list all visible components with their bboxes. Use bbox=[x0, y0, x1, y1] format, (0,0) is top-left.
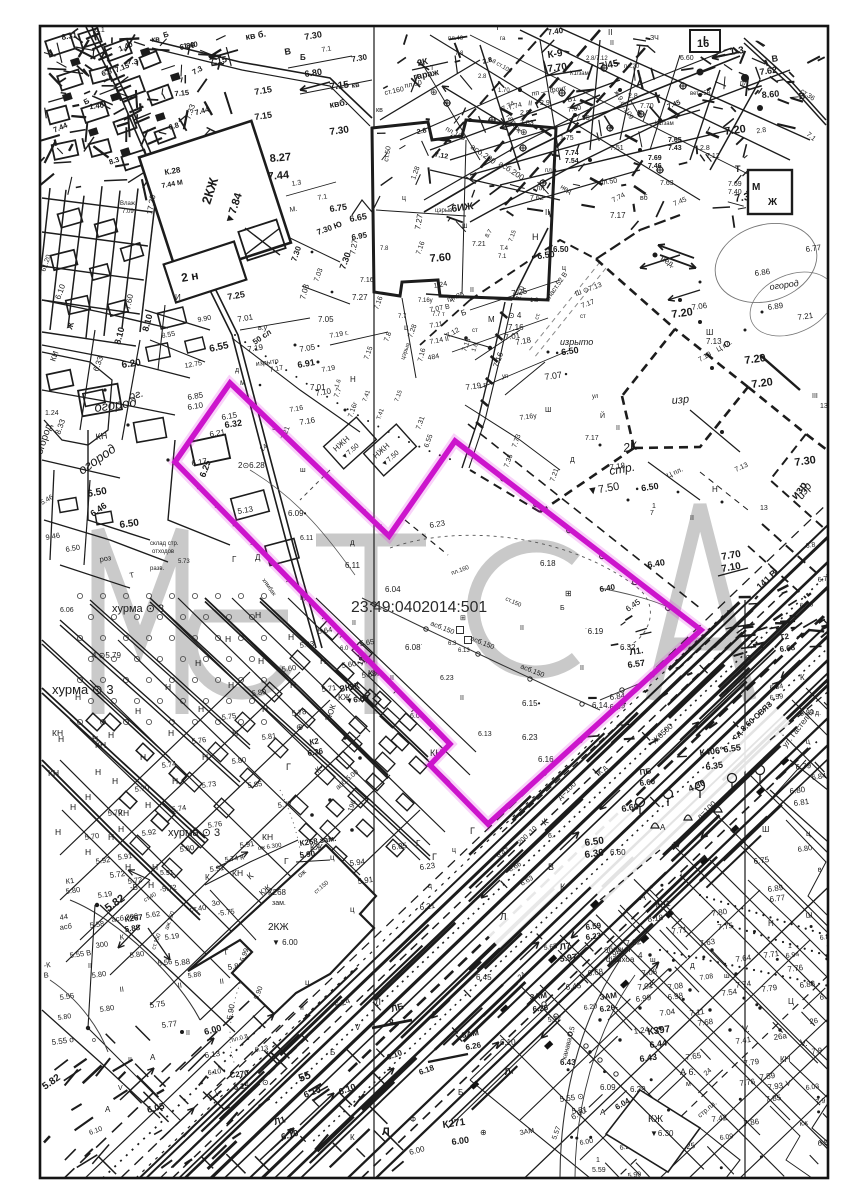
svg-text:6.13: 6.13 bbox=[478, 731, 492, 738]
svg-text:II: II bbox=[580, 665, 584, 672]
svg-text:II: II bbox=[186, 1030, 190, 1037]
svg-text:Ш: Ш bbox=[805, 910, 813, 920]
svg-text:д.: д. bbox=[815, 710, 821, 717]
svg-text:5.91: 5.91 bbox=[160, 870, 174, 877]
svg-text:A: A bbox=[150, 1053, 156, 1062]
svg-text:М: М bbox=[488, 315, 495, 324]
svg-text:пл.э: пл.э bbox=[545, 168, 556, 174]
svg-text:КН: КН bbox=[232, 868, 243, 878]
svg-text:В: В bbox=[548, 862, 554, 872]
svg-text:⊕: ⊕ bbox=[745, 653, 752, 662]
svg-text:6.7: 6.7 bbox=[817, 576, 828, 584]
svg-text:Н: Н bbox=[225, 634, 231, 644]
svg-text:7.05: 7.05 bbox=[318, 315, 334, 324]
svg-text:Н: Н bbox=[532, 232, 539, 242]
svg-text:ц: ц bbox=[562, 265, 566, 272]
svg-text:16: 16 bbox=[697, 38, 709, 50]
svg-text:ц: ц bbox=[330, 853, 335, 862]
svg-text:Л.: Л. bbox=[504, 1066, 514, 1077]
svg-text:ц: ц bbox=[452, 847, 456, 854]
svg-text:26: 26 bbox=[809, 1016, 819, 1026]
svg-text:II: II bbox=[300, 1005, 304, 1012]
svg-text:К: К bbox=[560, 882, 566, 892]
svg-text:ул: ул bbox=[592, 394, 599, 400]
svg-text:7.12: 7.12 bbox=[706, 153, 720, 160]
svg-text:Ш: Ш bbox=[762, 825, 769, 834]
svg-text:Н: Н bbox=[55, 827, 61, 837]
svg-text:о: о bbox=[92, 1037, 96, 1044]
svg-text:7.8: 7.8 bbox=[380, 246, 389, 252]
svg-text:6.45: 6.45 bbox=[476, 973, 492, 982]
svg-text:А: А bbox=[640, 892, 646, 902]
svg-text:7.16: 7.16 bbox=[360, 277, 374, 284]
svg-text:д: д bbox=[235, 367, 239, 374]
svg-text:▼ 6.00: ▼ 6.00 bbox=[272, 938, 298, 947]
svg-text:К1: К1 bbox=[65, 876, 75, 886]
svg-text:7.15: 7.15 bbox=[174, 88, 189, 98]
svg-text:ПБ: ПБ bbox=[639, 766, 652, 777]
svg-text:кж: кж bbox=[799, 1118, 808, 1128]
svg-text:Т.4: Т.4 bbox=[500, 246, 509, 252]
svg-text:отходов: отходов bbox=[152, 549, 174, 555]
svg-text:Н: Н bbox=[75, 692, 81, 702]
svg-text:Н: Н bbox=[255, 610, 261, 620]
svg-text:6.23: 6.23 bbox=[522, 733, 538, 742]
svg-text:6.: 6. bbox=[819, 992, 826, 1002]
svg-text:Н: Н bbox=[58, 734, 64, 744]
svg-text:44: 44 bbox=[59, 912, 69, 922]
svg-text:2.8: 2.8 bbox=[756, 127, 767, 135]
svg-text:⊕: ⊕ bbox=[296, 722, 304, 732]
svg-text:6.06: 6.06 bbox=[60, 607, 74, 614]
svg-text:Н: Н bbox=[145, 800, 151, 810]
svg-text:М.: М. bbox=[289, 206, 298, 214]
svg-text:7.21: 7.21 bbox=[472, 241, 486, 248]
svg-text:-В: -В bbox=[130, 883, 138, 892]
svg-text:кв: кв bbox=[376, 107, 383, 114]
svg-text:А: А bbox=[660, 823, 666, 832]
svg-text:7.54: 7.54 bbox=[565, 158, 579, 165]
svg-text:7.70: 7.70 bbox=[640, 103, 654, 110]
svg-text:Л1.: Л1. bbox=[629, 645, 644, 657]
svg-text:Н: Н bbox=[712, 485, 718, 494]
svg-text:ц: ц bbox=[428, 883, 432, 890]
svg-text:7.40: 7.40 bbox=[728, 189, 742, 196]
svg-text:6.11: 6.11 bbox=[300, 535, 313, 542]
svg-text:7.62: 7.62 bbox=[530, 195, 544, 202]
svg-text:6.08˙: 6.08˙ bbox=[405, 643, 423, 652]
svg-text:7.1: 7.1 bbox=[498, 254, 507, 260]
svg-text:Т2: Т2 bbox=[779, 632, 790, 642]
svg-text:2.8: 2.8 bbox=[700, 145, 710, 152]
svg-text:К: К bbox=[350, 1133, 355, 1142]
svg-text:Г: Г bbox=[416, 839, 421, 848]
svg-text:7.65: 7.65 bbox=[668, 137, 682, 144]
svg-text:V.: V. bbox=[742, 1024, 750, 1034]
svg-text:7.9: 7.9 bbox=[811, 1046, 823, 1056]
svg-text:цэрыв: цэрыв bbox=[435, 208, 452, 214]
svg-text:26а: 26а bbox=[773, 1031, 788, 1042]
svg-text:д: д bbox=[350, 538, 355, 547]
svg-text:II: II bbox=[528, 100, 532, 107]
svg-text:КН: КН bbox=[780, 1055, 791, 1064]
svg-text:6.11: 6.11 bbox=[345, 561, 361, 570]
svg-text:II: II bbox=[88, 963, 92, 970]
svg-text:0.1: 0.1 bbox=[95, 27, 105, 34]
svg-text:7.74: 7.74 bbox=[565, 150, 579, 157]
svg-text:V: V bbox=[215, 1091, 220, 1098]
svg-text:7.17: 7.17 bbox=[585, 435, 599, 442]
svg-text:Н: Н bbox=[195, 658, 201, 668]
svg-text:2.9: 2.9 bbox=[540, 100, 550, 107]
svg-text:ц: ц bbox=[404, 323, 409, 332]
svg-text:1: 1 bbox=[652, 503, 656, 510]
svg-text:5.59: 5.59 bbox=[592, 1167, 606, 1174]
svg-text:V: V bbox=[355, 1023, 361, 1032]
svg-text:Н: Н bbox=[85, 847, 91, 857]
svg-text:II: II bbox=[352, 620, 356, 627]
svg-text:разв.: разв. bbox=[150, 566, 165, 572]
svg-text:Н: Н bbox=[85, 792, 91, 802]
svg-text:⊞: ⊞ bbox=[565, 589, 572, 598]
svg-text:2.8: 2.8 bbox=[520, 110, 530, 117]
svg-text:6.60: 6.60 bbox=[610, 848, 626, 857]
svg-text:7.51: 7.51 bbox=[610, 145, 624, 152]
svg-text:вет.25В: вет.25В bbox=[690, 91, 711, 97]
svg-text:Ф: Ф bbox=[410, 1115, 416, 1124]
svg-text:II: II bbox=[608, 28, 612, 37]
svg-text:⊕: ⊕ bbox=[430, 87, 438, 97]
svg-text:Л7: Л7 bbox=[559, 941, 572, 952]
svg-text:7.17: 7.17 bbox=[610, 211, 626, 220]
svg-text:пл.20: пл.20 bbox=[624, 64, 640, 70]
svg-text:КН: КН bbox=[262, 832, 273, 842]
svg-text:К: К bbox=[205, 873, 210, 882]
svg-text:Н: Н bbox=[95, 767, 101, 777]
svg-text:1.70: 1.70 bbox=[498, 88, 510, 94]
svg-text:вб: вб bbox=[640, 194, 648, 202]
svg-text:Н: Н bbox=[168, 728, 174, 738]
svg-text:7.16у: 7.16у bbox=[418, 298, 433, 304]
svg-text:К1/зам: К1/зам bbox=[655, 121, 674, 127]
svg-text:пл.40: пл.40 bbox=[448, 36, 464, 42]
svg-text:1.40: 1.40 bbox=[89, 101, 105, 112]
svg-text:7.69: 7.69 bbox=[648, 155, 662, 162]
svg-text:300: 300 bbox=[95, 939, 109, 950]
svg-text:Г: Г bbox=[470, 826, 475, 836]
svg-text:7.60: 7.60 bbox=[429, 251, 451, 265]
svg-text:8.60: 8.60 bbox=[761, 89, 779, 100]
svg-text:II: II bbox=[690, 515, 694, 522]
svg-text:7.27: 7.27 bbox=[352, 293, 368, 302]
svg-text:ш: ш bbox=[650, 957, 656, 964]
svg-text:6.13: 6.13 bbox=[458, 648, 470, 654]
svg-text:II: II bbox=[128, 1057, 132, 1064]
svg-text:Ц: Ц bbox=[788, 997, 794, 1006]
svg-text:2 н: 2 н bbox=[180, 268, 199, 285]
svg-text:6.23: 6.23 bbox=[440, 675, 454, 682]
svg-text:7.43: 7.43 bbox=[668, 145, 682, 152]
svg-text:2.8: 2.8 bbox=[628, 93, 638, 100]
svg-text:Н: Н bbox=[108, 832, 114, 842]
svg-text:V: V bbox=[118, 1085, 123, 1092]
svg-text:Ш: Ш bbox=[462, 224, 468, 230]
svg-text:6.18: 6.18 bbox=[540, 559, 556, 568]
svg-text:КН: КН bbox=[95, 430, 108, 442]
svg-text:7.09: 7.09 bbox=[122, 209, 134, 215]
svg-text:Б: Б bbox=[560, 605, 565, 612]
svg-text:2.8: 2.8 bbox=[478, 74, 487, 80]
svg-text:⊙ 4: ⊙ 4 bbox=[508, 311, 522, 320]
svg-text:7.8: 7.8 bbox=[455, 51, 464, 57]
svg-text:II: II bbox=[470, 287, 474, 294]
svg-text:К-9: К-9 bbox=[547, 48, 564, 61]
svg-text:1: 1 bbox=[596, 1157, 600, 1164]
svg-text:Н: Н bbox=[228, 680, 234, 690]
svg-text:Н: Н bbox=[70, 802, 76, 812]
svg-text:6.: 6. bbox=[548, 833, 554, 840]
svg-text:⊕: ⊕ bbox=[520, 127, 528, 137]
svg-text:М: М bbox=[752, 182, 760, 193]
svg-text:м: м bbox=[240, 378, 246, 387]
svg-text:Н: Н bbox=[108, 730, 114, 740]
svg-text:⊞: ⊞ bbox=[460, 615, 466, 622]
svg-text:Й: Й bbox=[600, 411, 605, 420]
svg-text:Т: Т bbox=[735, 164, 741, 174]
svg-text:изр: изр bbox=[671, 394, 689, 407]
svg-text:II: II bbox=[545, 208, 549, 217]
svg-text:II: II bbox=[616, 425, 620, 432]
svg-text:2⊙6.28: 2⊙6.28 bbox=[238, 461, 265, 470]
svg-text:7.3: 7.3 bbox=[127, 57, 137, 66]
svg-text:Г: Г bbox=[284, 856, 289, 866]
svg-text:13: 13 bbox=[760, 505, 768, 512]
svg-text:II: II bbox=[460, 695, 464, 702]
svg-text:1: 1 bbox=[788, 943, 792, 950]
svg-text:1.24: 1.24 bbox=[45, 410, 59, 417]
svg-text:Д: Д bbox=[690, 963, 695, 970]
svg-text:7.9: 7.9 bbox=[815, 1098, 826, 1106]
svg-text:склад стр.: склад стр. bbox=[150, 541, 179, 547]
svg-text:Н: Н bbox=[112, 776, 118, 786]
svg-text:га: га bbox=[500, 36, 506, 42]
svg-text:Н: Н bbox=[135, 706, 141, 716]
svg-text:2КЖ: 2КЖ bbox=[268, 922, 289, 933]
svg-text:5.73: 5.73 bbox=[178, 559, 190, 565]
svg-text:И: И bbox=[175, 293, 181, 302]
svg-text:Б: Б bbox=[330, 1048, 335, 1057]
svg-text:6.3: 6.3 bbox=[448, 641, 457, 647]
svg-text:Л: Л bbox=[500, 912, 507, 923]
svg-text:III: III bbox=[812, 393, 818, 400]
svg-text:Н: Н bbox=[148, 880, 154, 890]
svg-text:6.8: 6.8 bbox=[805, 542, 816, 550]
svg-text:A: A bbox=[105, 1105, 111, 1114]
svg-text:уп: уп bbox=[502, 374, 508, 380]
svg-text:ц: ц bbox=[402, 195, 406, 202]
svg-text:8.27: 8.27 bbox=[269, 151, 291, 165]
svg-text:Н: Н bbox=[768, 919, 774, 928]
svg-text:1.75: 1.75 bbox=[560, 135, 574, 142]
svg-text:7.46: 7.46 bbox=[648, 163, 662, 170]
svg-text:7.44: 7.44 bbox=[267, 169, 290, 183]
svg-text:ц: ц bbox=[305, 978, 310, 987]
svg-text:пл.: пл. bbox=[536, 185, 547, 193]
svg-text:7.95: 7.95 bbox=[576, 115, 590, 122]
svg-text:6.04: 6.04 bbox=[385, 585, 401, 594]
svg-text:А: А bbox=[600, 1108, 606, 1117]
svg-text:В1: В1 bbox=[567, 96, 577, 104]
svg-text:˙6.19: ˙6.19 bbox=[585, 627, 604, 636]
svg-text:⊕: ⊕ bbox=[480, 1128, 487, 1137]
svg-text:6.60: 6.60 bbox=[680, 55, 694, 62]
svg-text:Г: Г bbox=[232, 555, 237, 564]
svg-text:зам.: зам. bbox=[272, 900, 286, 907]
svg-text:К: К bbox=[800, 673, 805, 682]
svg-text:Л: Л bbox=[375, 997, 381, 1007]
svg-text:ш: ш bbox=[300, 467, 306, 474]
svg-text:6.09: 6.09 bbox=[600, 1083, 616, 1092]
svg-text:Г: Г bbox=[286, 762, 291, 772]
svg-text:7.63: 7.63 bbox=[660, 180, 674, 187]
svg-text:Ш: Ш bbox=[706, 328, 713, 337]
svg-text:Н: Н bbox=[350, 375, 356, 384]
svg-text:асб: асб bbox=[59, 921, 72, 932]
svg-text:6.15•: 6.15• bbox=[522, 699, 541, 708]
svg-text:ЗЧ: ЗЧ bbox=[650, 35, 659, 42]
svg-text:Н: Н bbox=[165, 682, 171, 692]
svg-text:6.09•: 6.09• bbox=[288, 509, 307, 518]
svg-text:Ш: Ш bbox=[545, 407, 551, 414]
svg-text:ст: ст bbox=[472, 328, 478, 334]
svg-text:Н: Н bbox=[118, 824, 124, 834]
svg-text:Ж: Ж bbox=[767, 197, 778, 208]
svg-text:1.8: 1.8 bbox=[530, 298, 539, 304]
svg-text:Д: Д bbox=[570, 457, 575, 464]
svg-text:II: II bbox=[610, 40, 614, 47]
svg-text:7.69: 7.69 bbox=[728, 181, 742, 188]
svg-text:Б: Б bbox=[300, 53, 306, 62]
svg-text:23:49:0402014:501: 23:49:0402014:501 bbox=[351, 599, 487, 616]
svg-text:7.16: 7.16 bbox=[508, 323, 524, 332]
svg-text:Б: Б bbox=[458, 1088, 463, 1097]
svg-text:6.8: 6.8 bbox=[817, 1138, 829, 1148]
svg-text:II: II bbox=[520, 625, 524, 632]
svg-text:ст: ст bbox=[580, 314, 586, 320]
svg-text:7: 7 bbox=[650, 510, 654, 517]
svg-text:Влаж: Влаж bbox=[120, 201, 135, 207]
svg-text:ц: ц bbox=[350, 905, 355, 914]
